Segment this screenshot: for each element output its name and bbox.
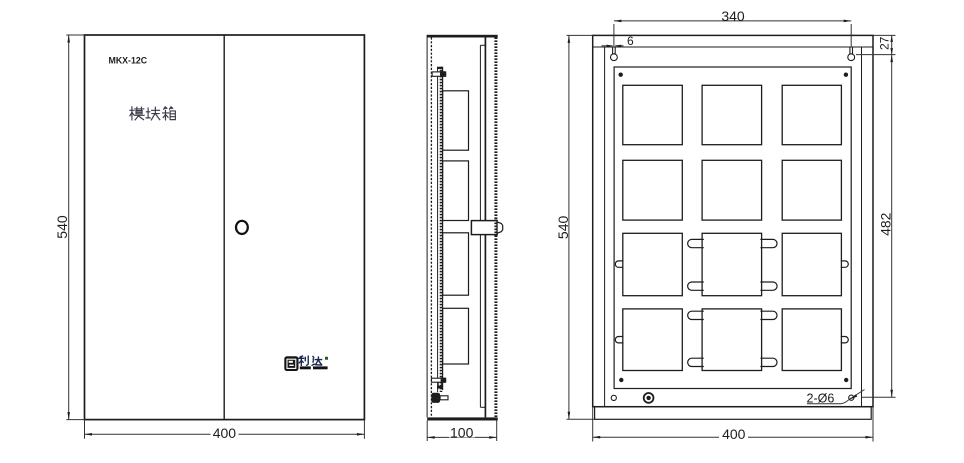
svg-text:400: 400 xyxy=(213,425,237,441)
svg-text:400: 400 xyxy=(722,426,746,442)
svg-text:6: 6 xyxy=(627,34,634,48)
svg-text:482: 482 xyxy=(877,212,893,236)
svg-text:2-Ø6: 2-Ø6 xyxy=(807,391,835,405)
svg-text:100: 100 xyxy=(450,424,474,440)
svg-text:540: 540 xyxy=(555,216,571,240)
svg-text:MKX-12C: MKX-12C xyxy=(109,55,148,65)
svg-text:27: 27 xyxy=(878,36,892,50)
svg-text:540: 540 xyxy=(54,215,70,239)
svg-text:340: 340 xyxy=(721,8,745,24)
